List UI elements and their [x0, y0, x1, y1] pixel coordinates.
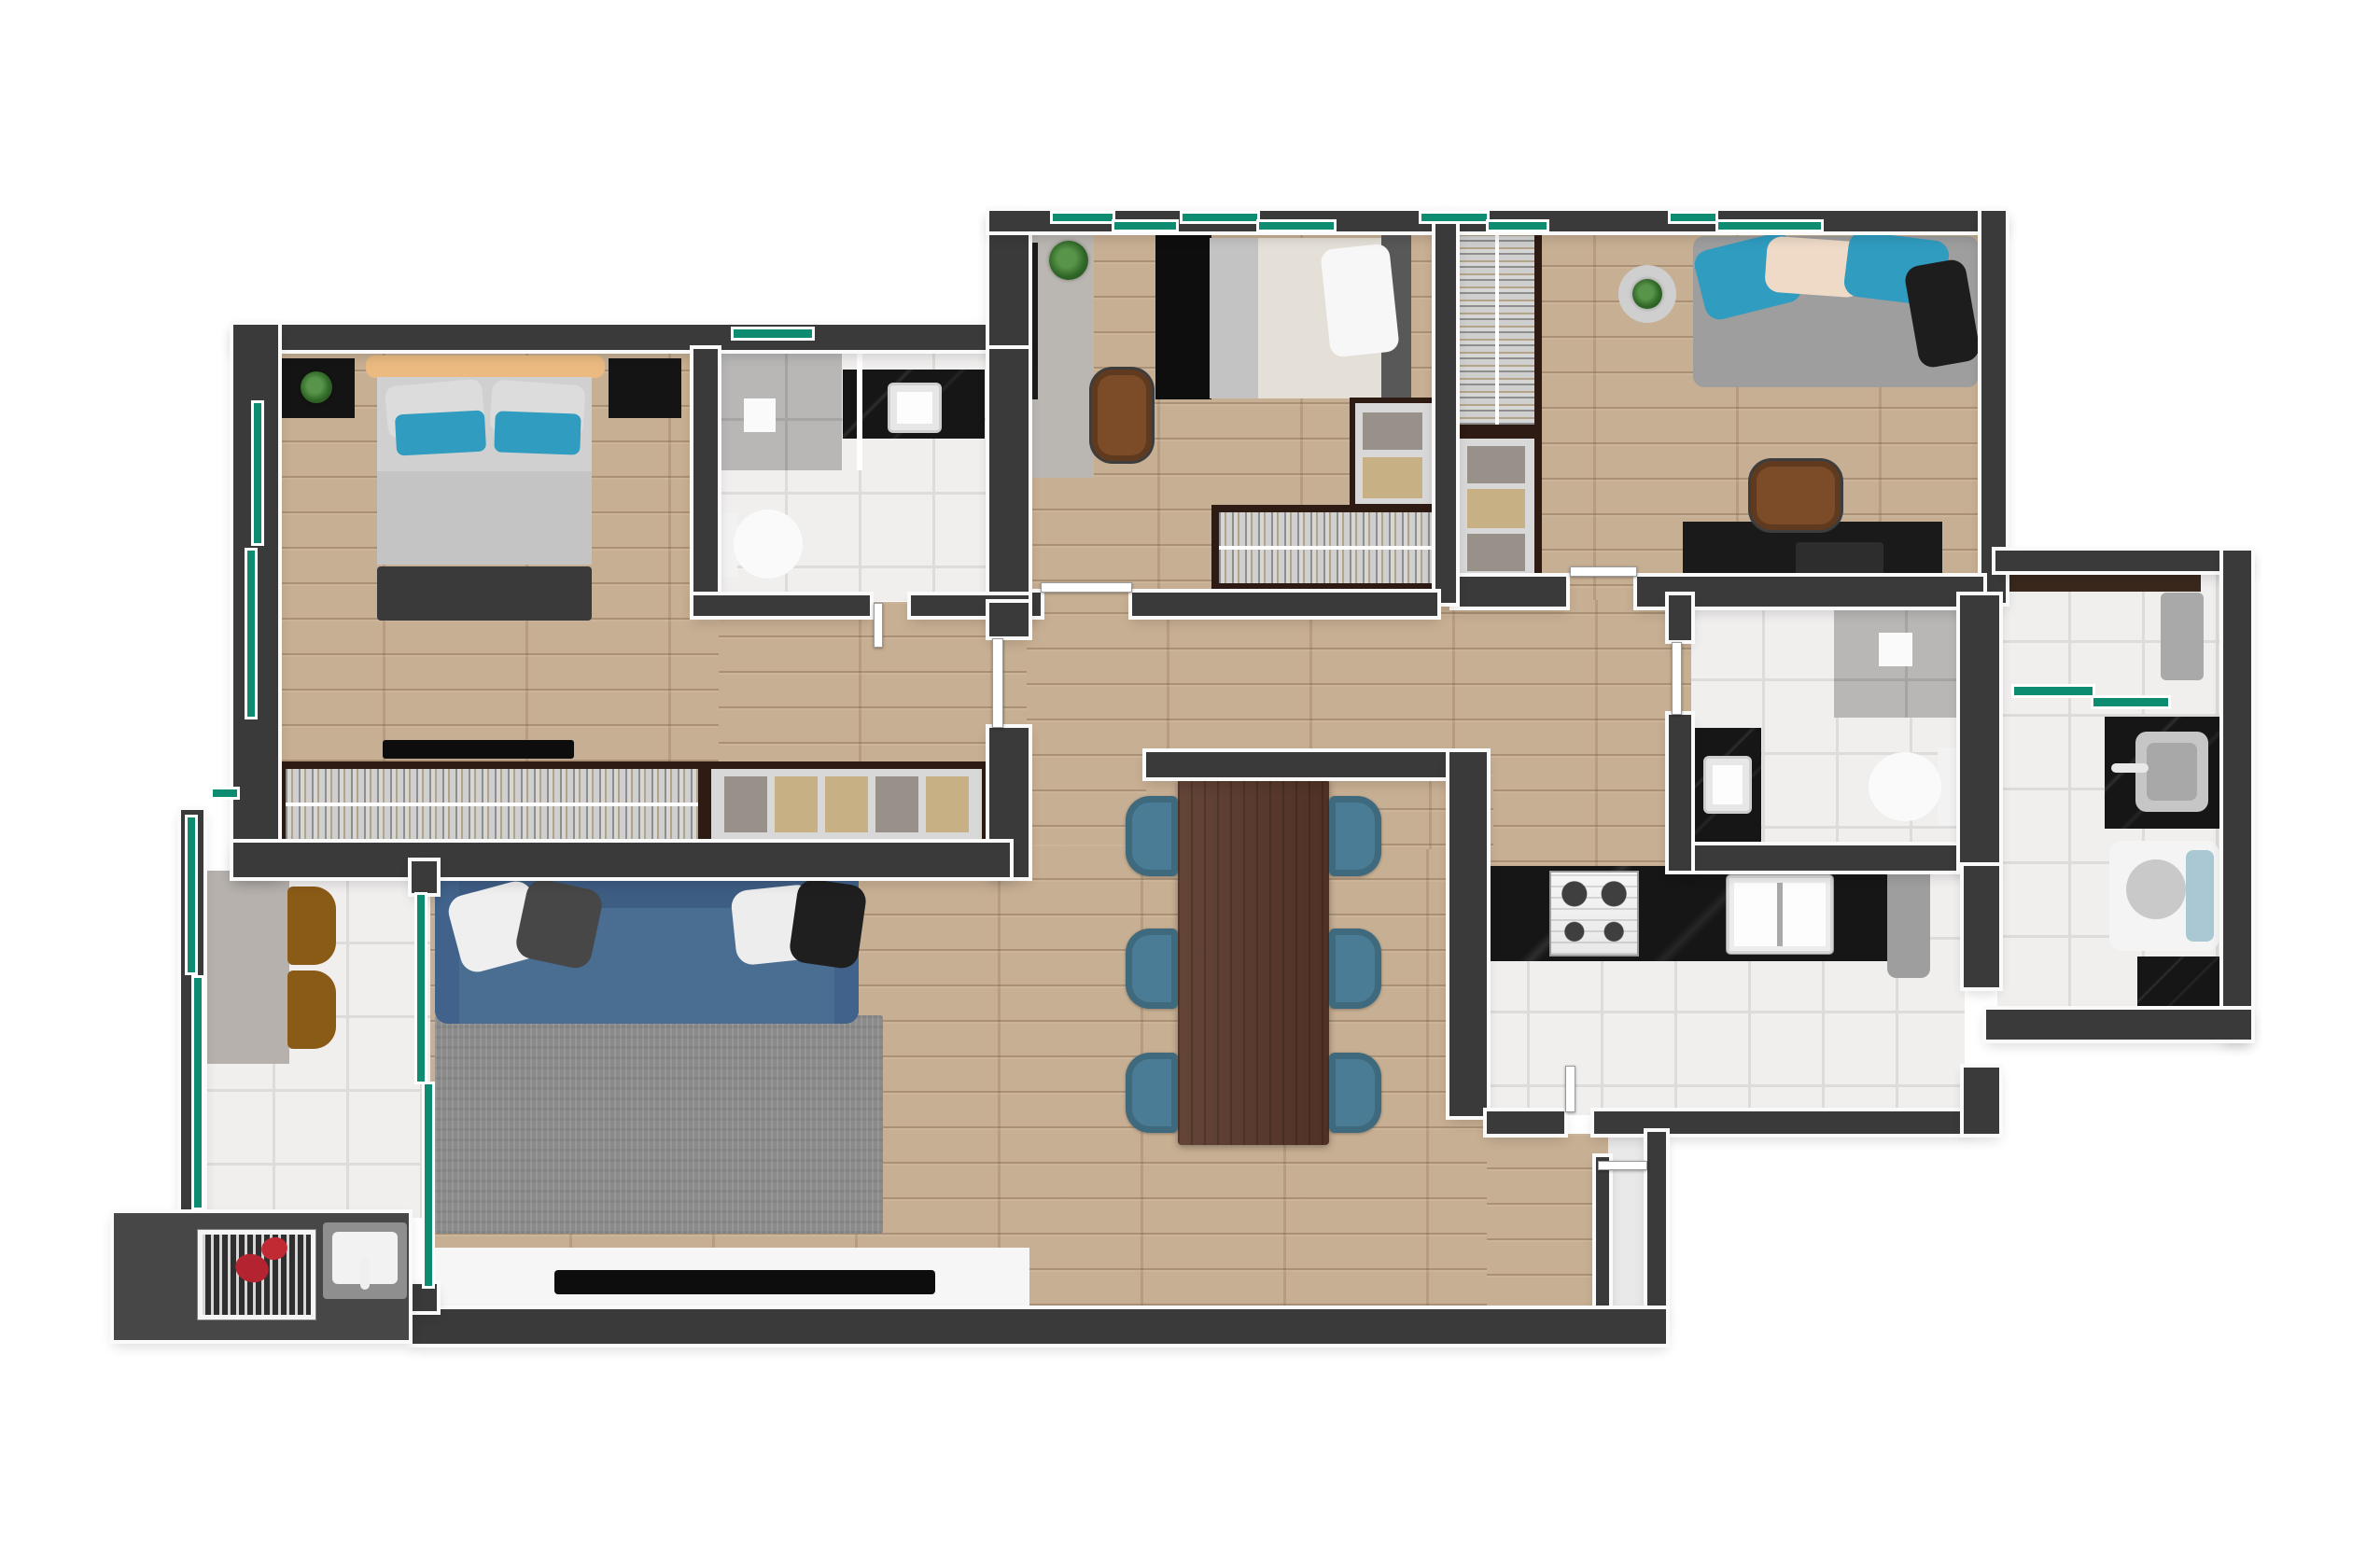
- wall: [693, 349, 718, 603]
- balcony-chair: [287, 887, 336, 965]
- balcony-chair: [287, 970, 336, 1049]
- dining-chair: [1126, 929, 1178, 1009]
- single-bed-throw: [1155, 235, 1211, 399]
- wall: [1435, 211, 1456, 603]
- wall: [989, 603, 1029, 636]
- sliding-door-glass: [425, 1084, 432, 1286]
- sofa-pillow-black: [788, 877, 868, 970]
- window: [1671, 214, 1715, 221]
- single-bed-sheet: [1210, 238, 1258, 398]
- closet-hangers: [1459, 234, 1534, 425]
- wall: [1449, 752, 1487, 1116]
- wall: [1995, 551, 2251, 571]
- window: [1421, 214, 1487, 221]
- side-table-plant: [1632, 279, 1662, 309]
- folded-clothes: [1467, 534, 1525, 571]
- toilet: [734, 510, 803, 579]
- folded-clothes: [926, 776, 969, 832]
- folded-clothes: [825, 776, 868, 832]
- door-leaf: [1672, 642, 1682, 715]
- kitchen-sink: [1727, 875, 1833, 954]
- dining-chair: [1126, 1053, 1178, 1133]
- cooktop: [1549, 871, 1639, 957]
- toilet: [1869, 752, 1941, 821]
- entry-niche-floor: [1608, 1132, 1647, 1313]
- folded-clothes: [1467, 489, 1525, 528]
- window: [734, 329, 812, 338]
- laundry-shelf: [1999, 571, 2201, 592]
- wall: [1132, 593, 1437, 616]
- nightstand-plant: [301, 371, 332, 403]
- dining-chair: [1329, 1053, 1381, 1133]
- dining-chair: [1126, 796, 1178, 876]
- shower-control: [744, 398, 776, 432]
- dining-chair: [1329, 796, 1381, 876]
- laundry-marble-floor: [2137, 957, 2226, 1011]
- wall: [989, 349, 1029, 603]
- bed-accent-pillow: [494, 411, 581, 454]
- wardrobe-hangers: [286, 769, 698, 840]
- bed-headboard: [366, 356, 605, 378]
- window: [194, 978, 202, 1208]
- wall: [1594, 1111, 1967, 1134]
- faucet: [2111, 763, 2149, 773]
- wall: [1964, 866, 1999, 987]
- door-leaf: [874, 603, 883, 648]
- rack-hangers: [1219, 512, 1432, 583]
- wall: [1487, 1111, 1564, 1134]
- wall: [1669, 715, 1691, 871]
- nightstand: [609, 358, 681, 418]
- window: [188, 817, 195, 972]
- wall: [412, 861, 437, 893]
- sliding-door-glass: [417, 895, 425, 1082]
- faucet: [360, 1258, 370, 1290]
- wall: [1453, 577, 1566, 607]
- wall: [1669, 595, 1691, 640]
- bed-blanket: [377, 471, 592, 565]
- entry-passage-floor: [1487, 1134, 1610, 1313]
- desk-plant: [1049, 241, 1088, 280]
- window: [1718, 222, 1821, 230]
- office-chair: [1092, 370, 1152, 461]
- water-heater: [2161, 593, 2204, 680]
- wall: [2223, 551, 2251, 1040]
- window: [1183, 214, 1257, 221]
- bedroom-tv: [383, 740, 574, 759]
- floor-plan-canvas: [0, 0, 2380, 1550]
- wall: [1960, 595, 1999, 871]
- wall: [1596, 1157, 1609, 1313]
- tv-on-console: [554, 1270, 935, 1294]
- wall: [233, 325, 1010, 350]
- door-leaf: [1598, 1161, 1647, 1170]
- folded-clothes: [724, 776, 767, 832]
- living-rug: [435, 1015, 883, 1234]
- dining-chair: [1329, 929, 1381, 1009]
- window: [247, 551, 255, 717]
- folded-clothes: [1363, 412, 1422, 450]
- wall: [989, 211, 1029, 353]
- wall: [693, 595, 870, 616]
- dining-table: [1178, 779, 1329, 1145]
- wall: [1689, 845, 1967, 871]
- wall: [233, 843, 1010, 877]
- wall: [1986, 1010, 2251, 1040]
- window: [1053, 214, 1113, 221]
- door-leaf: [1570, 566, 1637, 577]
- office-chair: [1751, 461, 1841, 530]
- bed-foot-bench: [377, 566, 592, 621]
- bathroom2-sink: [1703, 756, 1752, 814]
- window: [1489, 222, 1547, 230]
- wall: [1981, 211, 2006, 603]
- window: [2093, 698, 2168, 706]
- folded-clothes: [875, 776, 918, 832]
- folded-clothes: [1467, 446, 1525, 483]
- folded-clothes: [1363, 457, 1422, 498]
- wall: [1964, 1068, 1999, 1134]
- door-leaf: [992, 638, 1003, 728]
- wall: [409, 1309, 1666, 1344]
- kitchen-cabinet: [1887, 866, 1930, 978]
- balcony-table: [205, 871, 289, 1064]
- living-sofa-arm: [435, 871, 459, 1024]
- shower-glass: [857, 347, 862, 470]
- window: [1259, 222, 1334, 230]
- washer-lid: [2186, 850, 2214, 942]
- shower-head: [1879, 633, 1912, 666]
- bed-accent-pillow: [395, 411, 486, 456]
- folded-clothes: [775, 776, 818, 832]
- window: [2014, 687, 2093, 695]
- washer-drum: [2126, 859, 2186, 919]
- door-leaf: [1041, 582, 1132, 593]
- wall: [1146, 752, 1454, 777]
- single-bed-pillow: [1320, 243, 1400, 357]
- bathroom1-shower-floor: [714, 347, 842, 470]
- window: [213, 789, 237, 797]
- door-leaf: [1565, 1066, 1575, 1112]
- window: [1114, 222, 1176, 230]
- window: [254, 403, 261, 543]
- wall: [412, 1284, 437, 1311]
- laundry-sink-basin: [2147, 743, 2197, 801]
- wall: [1647, 1132, 1666, 1319]
- bathroom1-sink: [888, 383, 942, 433]
